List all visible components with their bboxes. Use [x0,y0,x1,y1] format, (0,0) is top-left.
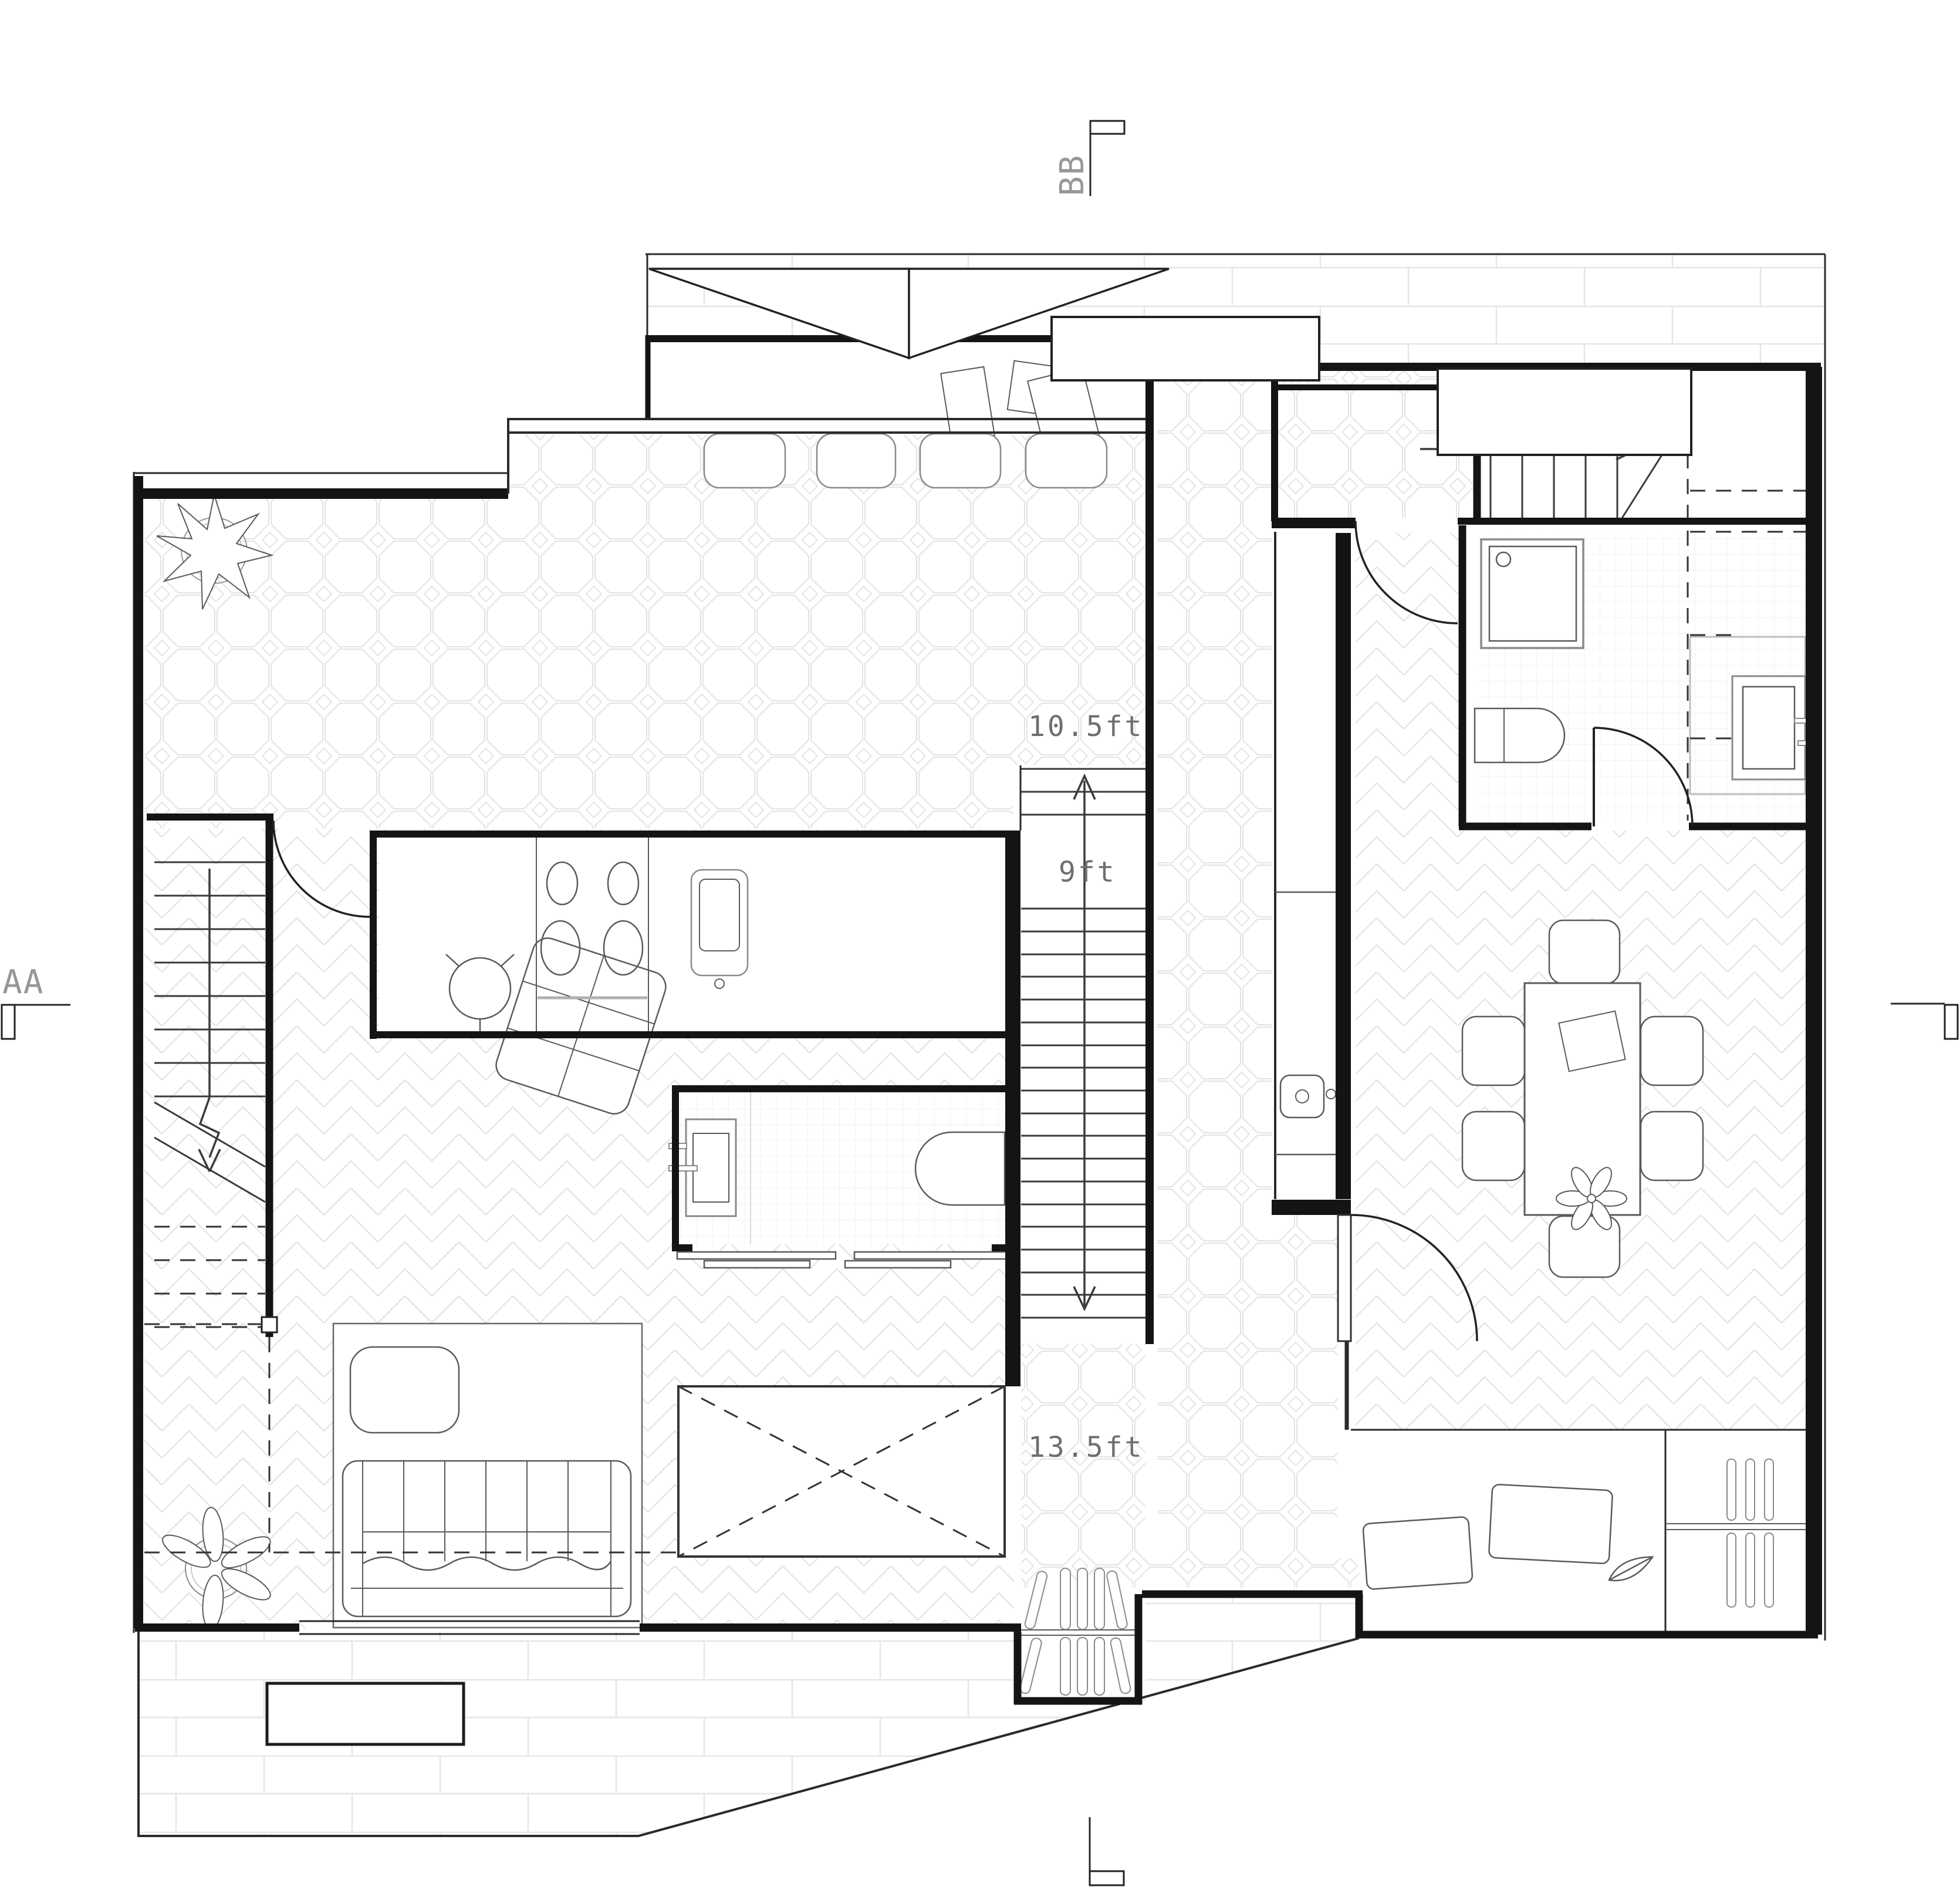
living-room-floor-below-void [678,1557,1014,1628]
dimension-lower: 13.5ft [1028,1431,1144,1464]
kitchen-sink-icon [691,870,748,988]
hall-floor [1157,371,1272,1558]
section-flag-icon [1090,1871,1124,1885]
section-marker-aa-right [1891,1004,1958,1039]
floor-plan-drawing: 10.5ft 9ft 13.5ft [0,0,1960,1887]
sofa-icon [343,1461,631,1616]
mudroom [1351,1430,1806,1632]
section-marker-bb-top: BB [1053,121,1124,196]
section-flag-icon [1945,1005,1958,1039]
planter-icon [267,1683,464,1744]
floor-plan-sheet: 10.5ft 9ft 13.5ft [0,0,1960,1887]
washing-machine-icon [1732,676,1813,779]
column-post [262,1317,277,1332]
section-marker-bb-bottom [1090,1817,1124,1885]
hall-floor-bottom-strip [1021,1558,1359,1588]
dimension-landing: 9ft [1059,856,1117,889]
floor-void [678,1386,1005,1557]
section-label-aa: AA [2,963,44,1001]
shower-icon [1481,539,1583,648]
slipper-icon [1606,1550,1656,1586]
coffee-table-icon [350,1347,459,1433]
section-flag-icon [1090,121,1124,134]
hall-counter [1275,532,1336,1199]
toilet-icon [1475,708,1564,762]
bathtub-icon [915,1132,1005,1205]
doormat-icon [1363,1484,1613,1589]
skylight-icon [1052,317,1319,380]
ski-rack-icon [1665,1459,1806,1607]
section-flag-icon [2,1005,15,1039]
hall-floor-lower-right [1272,1215,1338,1558]
dimension-upper: 10.5ft [1028,710,1144,743]
counter-sink-icon [1280,1075,1336,1118]
skylight-icon [1438,369,1691,455]
section-label-bb: BB [1053,154,1091,196]
section-marker-aa-left: AA [2,963,70,1039]
